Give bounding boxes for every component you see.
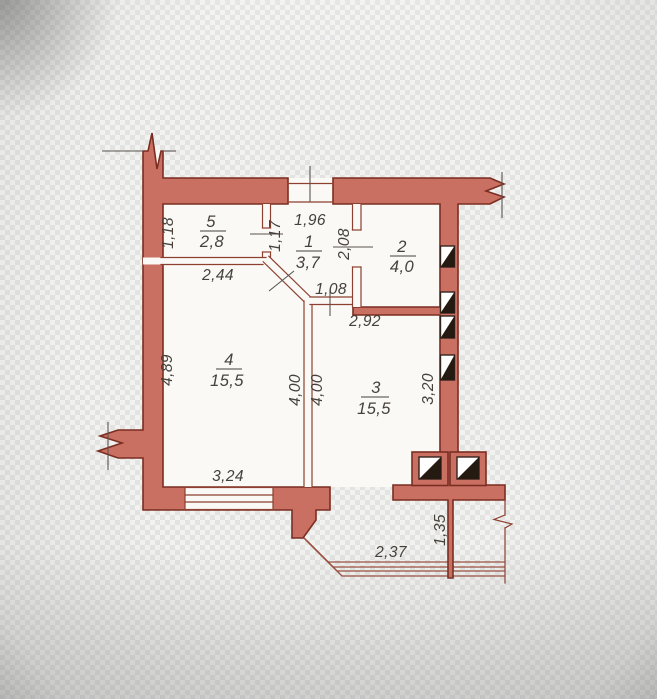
room-1-number: 1 — [304, 233, 314, 251]
dim-divider-left: 4,00 — [287, 374, 304, 406]
room-2-area: 4,0 — [390, 258, 415, 276]
dim-window-width: 3,24 — [212, 468, 244, 485]
dim-room4-height: 4,89 — [159, 354, 176, 386]
window — [185, 488, 273, 510]
room-3-area: 15,5 — [357, 400, 391, 418]
floor-plan-photo: 5 2,8 1 3,7 2 4,0 4 15,5 3 — [0, 0, 657, 699]
dim-room5-door: 1,17 — [267, 219, 284, 252]
break-zigzag-icon — [494, 515, 512, 528]
room-2-number: 2 — [396, 238, 407, 256]
dim-room2-door: 2,08 — [336, 228, 353, 261]
dim-room5-height: 1,18 — [160, 217, 177, 249]
room-3-number: 3 — [371, 379, 381, 397]
room-1-area: 3,7 — [296, 254, 321, 272]
room-4-area: 15,5 — [210, 372, 244, 390]
window-frame — [185, 488, 273, 510]
floor-plan-drawing: 5 2,8 1 3,7 2 4,0 4 15,5 3 — [0, 0, 657, 699]
dim-balcony-width: 2,37 — [374, 544, 408, 561]
room5-bottom-wall — [143, 258, 265, 265]
dim-divider-right: 4,00 — [309, 374, 326, 406]
dim-balcony-side: 1,35 — [432, 514, 449, 546]
dim-room3-top-width: 2,92 — [348, 313, 381, 330]
room-5-number: 5 — [206, 213, 216, 231]
room1-bottom-wall — [306, 297, 352, 305]
room-4-number: 4 — [224, 351, 234, 369]
dim-entrance-width: 1,96 — [294, 212, 326, 229]
room-5-area: 2,8 — [199, 233, 225, 251]
room2-left-wall — [353, 204, 362, 307]
dim-room3-opening: 1,08 — [315, 281, 347, 298]
dim-room5-width: 2,44 — [201, 267, 234, 284]
dim-room3-right-height: 3,20 — [420, 373, 437, 405]
